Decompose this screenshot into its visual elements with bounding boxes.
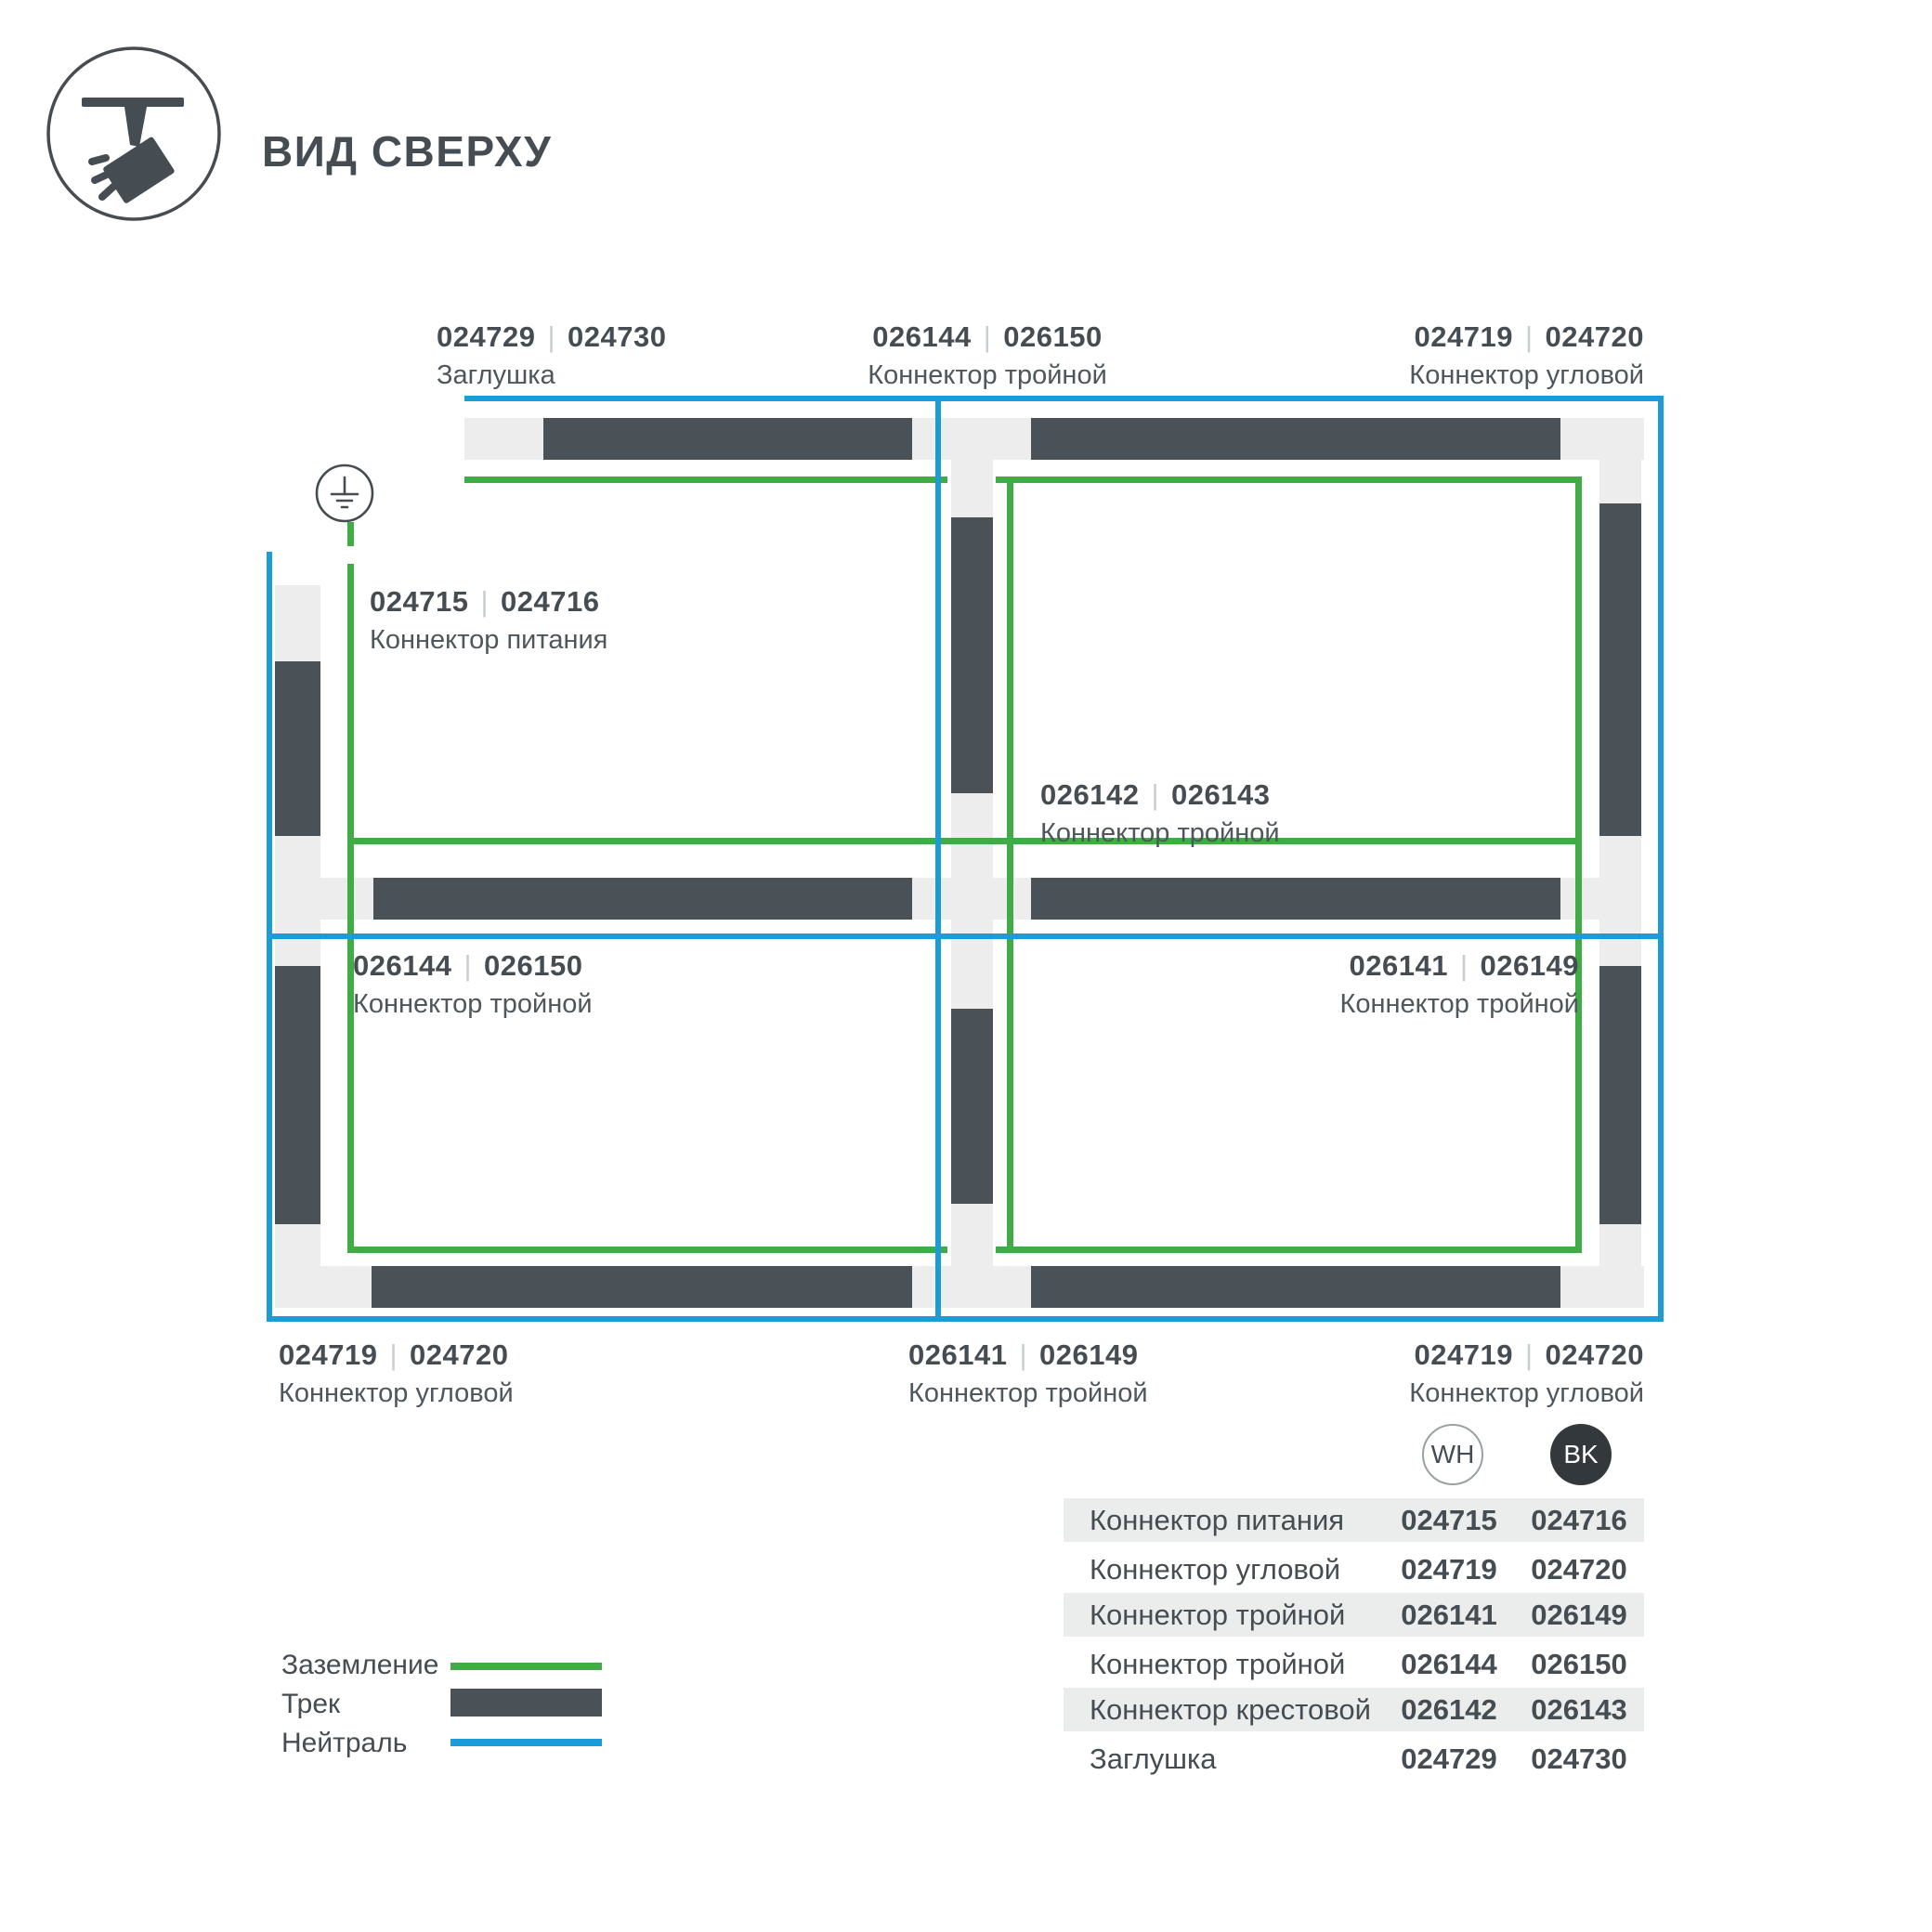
table-row: Коннектор тройной 026141 026149 xyxy=(1064,1593,1644,1640)
label-cross-connector: 026142|026143 Коннектор тройной xyxy=(1040,778,1280,849)
t-connector-left-v xyxy=(275,836,320,966)
neutral-line xyxy=(1658,396,1664,1322)
t-connector-bottom-stem xyxy=(951,1204,993,1266)
track-segment xyxy=(275,966,320,1224)
white-color-badge: WH xyxy=(1422,1424,1483,1485)
ground-line xyxy=(347,1247,947,1253)
legend-label-ground: Заземление xyxy=(281,1650,438,1681)
label-t-connector-top: 026144|026150 Коннектор тройной xyxy=(868,320,1107,391)
neutral-line xyxy=(267,1316,1664,1322)
parts-table: Коннектор питания 024715 024716 Коннекто… xyxy=(1064,1498,1644,1782)
ground-line xyxy=(347,838,1582,844)
label-power-connector: 024715|024716 Коннектор питания xyxy=(370,585,607,656)
track-segment xyxy=(1031,878,1560,920)
table-row: Заглушка 024729 024730 xyxy=(1064,1735,1644,1782)
label-corner-bottom-right: 024719|024720 Коннектор угловой xyxy=(1409,1338,1644,1409)
neutral-line xyxy=(464,396,1664,401)
page-title: ВИД СВЕРХУ xyxy=(262,126,552,176)
track-segment xyxy=(1599,503,1641,836)
label-corner-top-right: 024719|024720 Коннектор угловой xyxy=(1409,320,1644,391)
table-row: Коннектор питания 024715 024716 xyxy=(1064,1498,1644,1546)
legend-swatch-neutral xyxy=(450,1739,602,1746)
legend-label-track: Трек xyxy=(281,1689,340,1720)
t-connector-top-stem xyxy=(951,460,993,517)
track-segment xyxy=(951,1009,993,1204)
t-connector-top-bar xyxy=(912,418,1031,460)
track-segment xyxy=(543,418,912,460)
track-segment xyxy=(1599,966,1641,1224)
endcap-connector xyxy=(464,418,543,460)
ground-line xyxy=(1007,476,1013,1253)
cross-connector-stem xyxy=(951,793,993,1009)
track-segment xyxy=(1031,418,1560,460)
label-corner-bottom-left: 024719|024720 Коннектор угловой xyxy=(279,1338,514,1409)
top-view-diagram-page: ВИД СВЕРХУ xyxy=(0,0,1932,1932)
corner-connector-tr-v xyxy=(1599,418,1641,503)
table-row: Коннектор тройной 026144 026150 xyxy=(1064,1640,1644,1688)
ground-line xyxy=(996,1247,1582,1253)
track-segment xyxy=(275,661,320,836)
power-connector xyxy=(275,585,320,661)
ground-line xyxy=(464,476,947,483)
neutral-line xyxy=(267,552,272,1322)
legend-label-neutral: Нейтраль xyxy=(281,1728,407,1759)
label-endcap-top: 024729|024730 Заглушка xyxy=(437,320,666,391)
ground-line xyxy=(347,581,354,1253)
neutral-line xyxy=(935,396,941,1322)
ground-line xyxy=(1575,476,1582,1253)
t-connector-right-v xyxy=(1599,836,1641,966)
table-row: Коннектор крестовой 026142 026143 xyxy=(1064,1688,1644,1735)
track-segment xyxy=(372,1266,912,1308)
label-t-connector-bottom: 026141|026149 Коннектор тройной xyxy=(908,1338,1148,1409)
ground-line-dashed xyxy=(347,522,354,583)
neutral-line xyxy=(267,933,1664,939)
legend-swatch-track xyxy=(450,1689,602,1717)
label-t-connector-mid-right: 026141|026149 Коннектор тройной xyxy=(1339,949,1579,1020)
label-t-connector-mid-left: 026144|026150 Коннектор тройной xyxy=(353,949,593,1020)
t-connector-bottom-bar xyxy=(912,1266,1031,1308)
ground-icon xyxy=(314,463,375,524)
table-row: Коннектор угловой 024719 024720 xyxy=(1064,1546,1644,1593)
track-spotlight-icon xyxy=(45,45,223,223)
black-color-badge: BK xyxy=(1550,1424,1612,1485)
corner-connector-bl-h xyxy=(275,1266,372,1308)
track-segment xyxy=(373,878,912,920)
track-segment xyxy=(1031,1266,1560,1308)
track-segment xyxy=(951,517,993,793)
corner-connector-br-v xyxy=(1599,1224,1641,1308)
ground-line xyxy=(996,476,1582,483)
legend-swatch-ground xyxy=(450,1663,602,1670)
